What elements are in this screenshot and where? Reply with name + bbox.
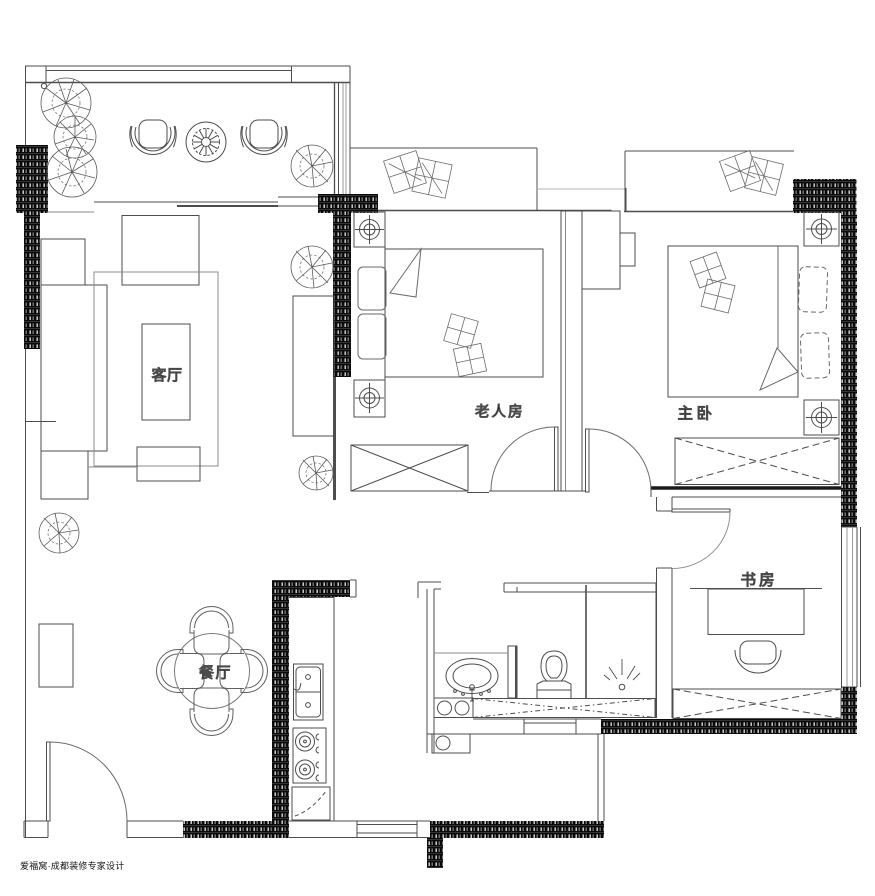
- svg-text:老人房: 老人房: [475, 404, 525, 421]
- svg-text:客厅: 客厅: [152, 367, 183, 384]
- svg-text:爱福窝·成都装修专家设计: 爱福窝·成都装修专家设计: [20, 860, 124, 871]
- svg-text:餐厅: 餐厅: [199, 665, 232, 682]
- svg-text:主卧: 主卧: [678, 405, 716, 423]
- svg-text:书房: 书房: [741, 571, 778, 589]
